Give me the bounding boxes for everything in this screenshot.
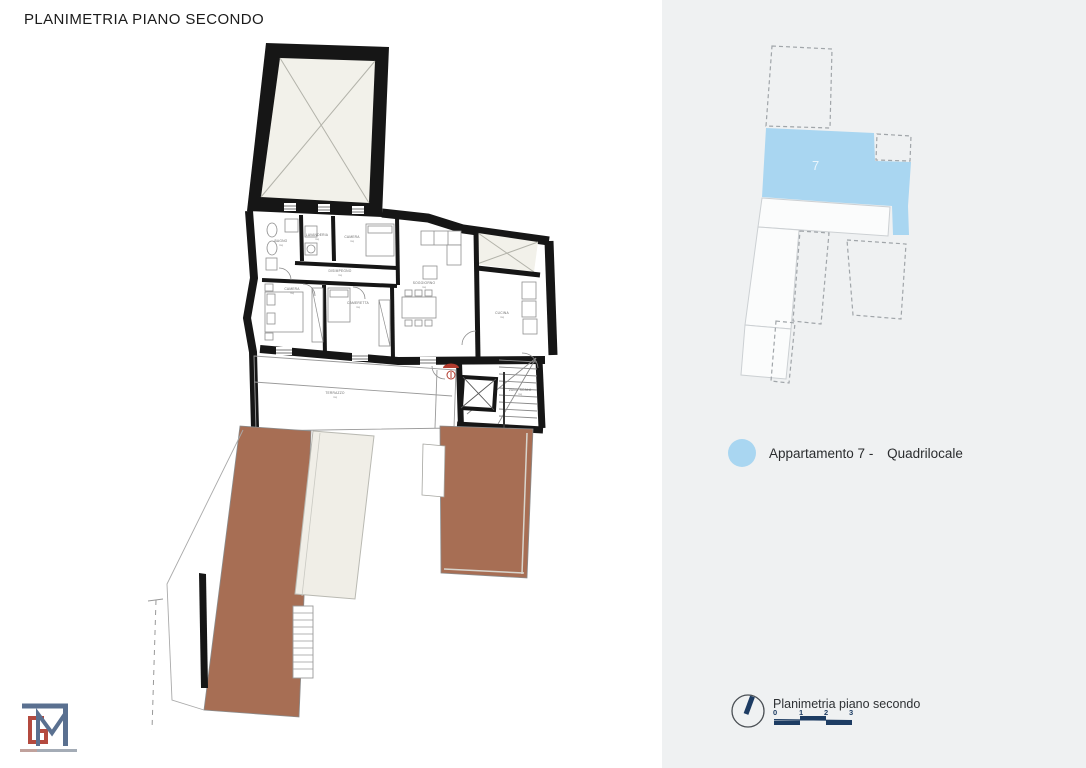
keyplan-left-lower-outline xyxy=(741,325,791,379)
stairwell xyxy=(461,358,537,428)
boundary-dashed xyxy=(152,600,156,730)
gm-logo xyxy=(22,706,68,746)
wall-top xyxy=(382,213,549,241)
roof-right xyxy=(440,426,533,578)
svg-text:mq: mq xyxy=(500,315,504,319)
ladder xyxy=(293,606,313,678)
svg-text:mq: mq xyxy=(338,273,342,277)
small-bedroom-bed xyxy=(366,224,394,256)
svg-text:mq: mq xyxy=(422,285,426,289)
sofa xyxy=(421,231,461,279)
wall-roof-left-edge xyxy=(199,573,208,688)
scale-tick-3: 3 xyxy=(849,708,853,717)
page-title: PLANIMETRIA PIANO SECONDO xyxy=(24,11,264,28)
tower-void xyxy=(261,58,375,203)
cameretta-bed xyxy=(328,288,350,322)
keyplan-unit-number: 7 xyxy=(812,158,819,173)
right-panel-bg xyxy=(662,0,1086,768)
legend-label: Appartamento 7 - Quadrilocale xyxy=(769,446,963,461)
wall-left xyxy=(247,211,255,428)
svg-text:mq: mq xyxy=(290,291,294,295)
scale-tick-1: 1 xyxy=(799,708,803,717)
legend-label-type: Quadrilocale xyxy=(887,446,963,461)
dining-table xyxy=(402,290,436,326)
svg-text:mq: mq xyxy=(518,392,522,396)
wall-right xyxy=(549,241,553,355)
svg-text:mq: mq xyxy=(350,239,354,243)
page: 7 xyxy=(0,0,1086,768)
svg-text:mq: mq xyxy=(356,305,360,309)
floorplan: BAGNOmq LAVANDERIAmq CAMERAmq SOGGIORNOm… xyxy=(148,43,553,730)
legend-swatch-apartment-7 xyxy=(728,439,756,467)
legend: Appartamento 7 - Quadrilocale xyxy=(728,439,963,467)
scale-tick-0: 0 xyxy=(773,708,777,717)
scale-tick-2: 2 xyxy=(824,708,828,717)
drawing-canvas: 7 xyxy=(0,0,1086,768)
terrace xyxy=(254,356,456,431)
roof-right-notch xyxy=(422,444,445,497)
svg-text:mq: mq xyxy=(315,237,319,241)
legend-label-apartment: Appartamento 7 - xyxy=(769,446,873,461)
master-bed xyxy=(265,284,303,340)
logo-tagline xyxy=(20,749,77,752)
kitchen-counter xyxy=(522,282,537,334)
footer-caption: Planimetria piano secondo xyxy=(773,697,920,711)
svg-text:mq: mq xyxy=(333,395,337,399)
svg-text:mq: mq xyxy=(279,243,283,247)
